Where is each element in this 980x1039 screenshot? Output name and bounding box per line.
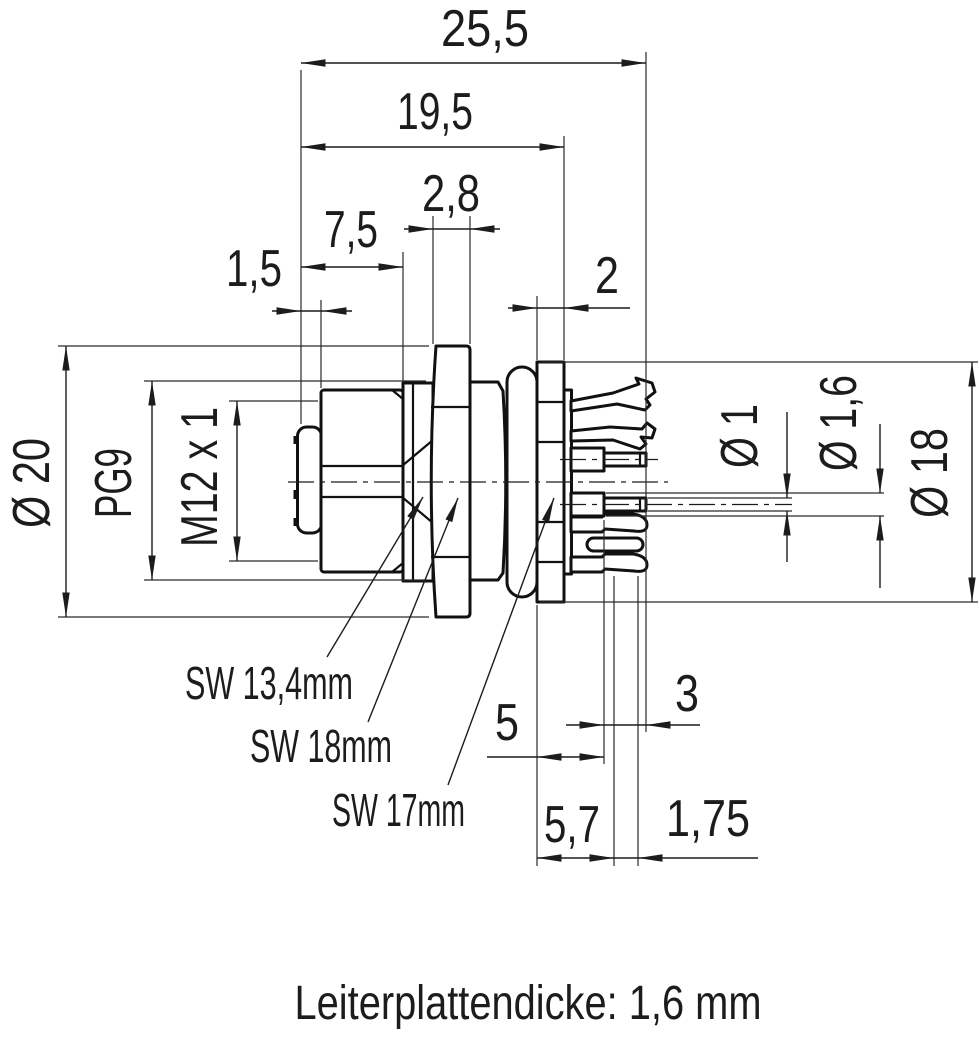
dim-label-19-5: 19,5 — [397, 83, 473, 141]
front-insert — [298, 427, 322, 533]
pressfit-tail-bottom — [571, 514, 647, 572]
label-sw-13-4: SW 13,4mm — [185, 657, 353, 709]
pressfit-tail-top — [571, 378, 655, 449]
dim-label-2: 2 — [595, 247, 619, 305]
label-sw-17: SW 17mm — [332, 784, 465, 836]
dim-label-5: 5 — [495, 694, 519, 752]
dim-label-7-5: 7,5 — [324, 201, 378, 259]
caption-pcb-thickness: Leiterplattendicke: 1,6 mm — [295, 977, 762, 1030]
dim-label-d1-6: Ø 1,6 — [810, 375, 868, 471]
hex-body — [321, 390, 403, 572]
dim-label-d18: Ø 18 — [901, 428, 959, 518]
insert-notch — [294, 518, 299, 526]
dim-label-m12: M12 x 1 — [171, 407, 229, 547]
pg9-section — [470, 382, 506, 580]
technical-drawing-page: 25,5 19,5 2,8 7,5 1,5 2 Ø 20 PG9 M12 x 1… — [0, 0, 980, 1039]
dim-label-d1: Ø 1 — [711, 404, 769, 468]
connector-dimension-drawing: 25,5 19,5 2,8 7,5 1,5 2 Ø 20 PG9 M12 x 1… — [0, 0, 980, 1039]
insert-notch — [294, 490, 299, 499]
insert-notch — [294, 436, 299, 444]
dim-label-1-5: 1,5 — [226, 240, 282, 298]
dim-label-d20: Ø 20 — [3, 438, 61, 528]
dim-label-3: 3 — [675, 665, 699, 723]
dim-label-1-75: 1,75 — [666, 790, 750, 848]
dim-label-2-8: 2,8 — [422, 165, 480, 223]
label-sw-18: SW 18mm — [250, 720, 392, 772]
dim-label-5-7: 5,7 — [544, 796, 600, 854]
dim-label-pg9: PG9 — [85, 448, 143, 518]
dim-label-25-5: 25,5 — [441, 0, 529, 58]
